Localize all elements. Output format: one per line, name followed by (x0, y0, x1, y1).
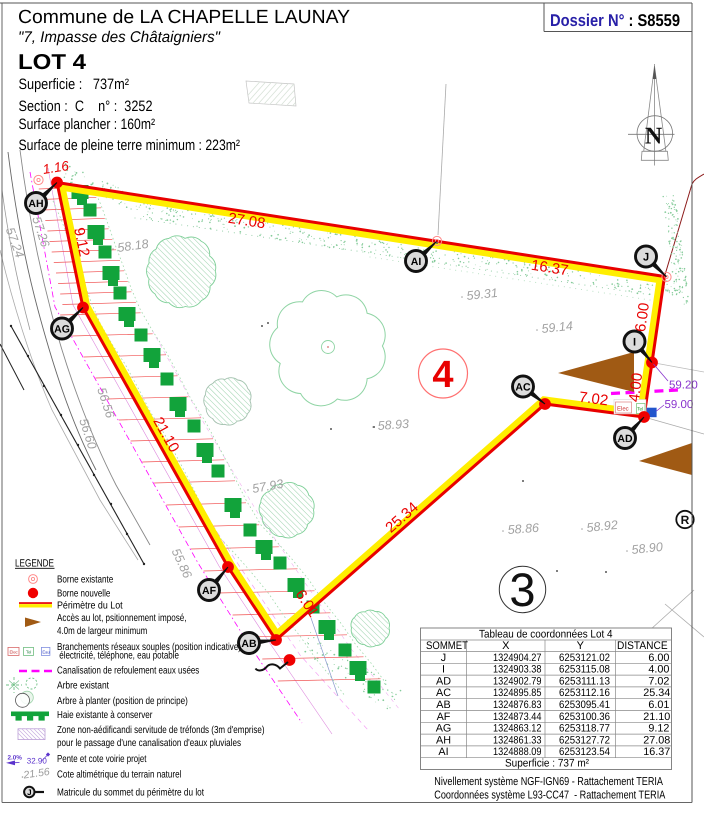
svg-text:Tableau de coordonnées Lot 4: Tableau de coordonnées Lot 4 (479, 629, 613, 641)
svg-text:1324888.09: 1324888.09 (493, 746, 542, 758)
svg-text:Dossier N° : S8559: Dossier N° : S8559 (550, 11, 680, 30)
svg-text:AD: AD (617, 433, 633, 445)
svg-text:Canalisation de refoulement ea: Canalisation de refoulement eaux usées (57, 666, 199, 677)
svg-text:AD: AD (436, 675, 451, 687)
svg-text:58.93: 58.93 (377, 417, 409, 433)
svg-text:N: N (645, 124, 663, 150)
svg-text:Borne existante: Borne existante (57, 575, 113, 586)
svg-text:LEGENDE: LEGENDE (15, 558, 54, 570)
svg-text:AB: AB (436, 699, 450, 711)
svg-text:6253095.41: 6253095.41 (559, 699, 610, 711)
svg-text:4: 4 (432, 354, 453, 396)
svg-text:I: I (442, 664, 445, 676)
svg-text:électricité, téléphone, eau po: électricité, téléphone, eau potable (57, 650, 179, 661)
svg-text:1324895.85: 1324895.85 (493, 687, 542, 699)
svg-text:AF: AF (202, 585, 217, 597)
svg-text:Superficie : 737m²: Superficie : 737m² (19, 76, 130, 93)
svg-text:Arbre existant: Arbre existant (57, 681, 109, 692)
svg-text:6253118.77: 6253118.77 (559, 723, 610, 735)
svg-text:21.10: 21.10 (643, 711, 670, 723)
svg-text:59.00: 59.00 (665, 399, 694, 411)
svg-text:Cote altimétrique du terrain n: Cote altimétrique du terrain naturel (57, 770, 181, 781)
svg-text:6253127.72: 6253127.72 (559, 734, 610, 746)
svg-text:Y: Y (577, 640, 585, 652)
svg-text:6253121.02: 6253121.02 (559, 652, 610, 664)
svg-text:6.01: 6.01 (648, 699, 669, 711)
svg-text:1324902.79: 1324902.79 (493, 675, 542, 687)
svg-text:Surface de pleine terre minimu: Surface de pleine terre minimum : 223m² (19, 137, 241, 154)
svg-text:Elec: Elec (617, 406, 629, 413)
svg-text:X: X (502, 640, 510, 652)
svg-text:AI: AI (438, 746, 448, 758)
svg-text:Zone non-aédificandi servitude: Zone non-aédificandi servitude de tréfon… (57, 725, 265, 736)
svg-text:58.86: 58.86 (507, 521, 539, 537)
svg-text:Accès au lot, psitionnement im: Accès au lot, psitionnement imposé, (57, 613, 187, 624)
svg-text:J: J (27, 788, 31, 797)
svg-text:AI: AI (411, 256, 422, 268)
svg-text:AC: AC (515, 381, 531, 393)
svg-text:1324873.44: 1324873.44 (493, 711, 542, 723)
svg-text:4.00: 4.00 (648, 664, 669, 676)
svg-text:LOT 4: LOT 4 (18, 50, 86, 74)
svg-text:Commune de LA CHAPELLE LAUNAY: Commune de LA CHAPELLE LAUNAY (18, 7, 350, 28)
svg-text:Borne nouvelle: Borne nouvelle (57, 589, 111, 600)
svg-text:4.00: 4.00 (626, 372, 646, 403)
svg-text:"7, Impasse des Châtaigniers": "7, Impasse des Châtaigniers" (18, 29, 221, 46)
svg-text:Coordonnées système L93-CC47: Coordonnées système L93-CC47 - Rattachem… (434, 790, 665, 802)
svg-text:AF: AF (437, 711, 451, 723)
svg-text:27.08: 27.08 (643, 734, 670, 746)
svg-text:I: I (633, 336, 636, 348)
svg-text:4.0m de largeur minimum: 4.0m de largeur minimum (57, 626, 147, 637)
svg-text:59.20: 59.20 (669, 380, 698, 392)
svg-text:AC: AC (436, 687, 451, 699)
svg-text:6.00: 6.00 (648, 652, 669, 664)
svg-text:Superficie : 737 m²: Superficie : 737 m² (505, 758, 589, 770)
svg-text:1324876.83: 1324876.83 (493, 699, 542, 711)
svg-text:Haie existante à conserver: Haie existante à conserver (57, 710, 153, 721)
svg-text:3: 3 (509, 563, 535, 616)
svg-text:6253115.08: 6253115.08 (559, 664, 610, 676)
svg-text:AH: AH (28, 198, 43, 210)
svg-text:AB: AB (241, 638, 257, 650)
svg-text:6253123.54: 6253123.54 (559, 746, 610, 758)
svg-text:16.37: 16.37 (643, 746, 670, 758)
svg-text:Surface plancher : 160m²: Surface plancher : 160m² (19, 116, 156, 133)
svg-text:Eau: Eau (42, 649, 50, 654)
svg-text:1324863.12: 1324863.12 (493, 723, 542, 735)
svg-text:AG: AG (54, 323, 70, 335)
svg-text:25.34: 25.34 (643, 687, 670, 699)
svg-text:Périmètre du Lot: Périmètre du Lot (57, 601, 123, 612)
svg-text:J: J (643, 251, 649, 263)
svg-text:J: J (441, 652, 446, 664)
svg-text:1324861.33: 1324861.33 (493, 734, 542, 746)
svg-text:Matricule du sommet du périmèt: Matricule du sommet du périmètre du lot (57, 788, 204, 799)
svg-text:2.0%: 2.0% (8, 754, 23, 761)
svg-text:6253111.13: 6253111.13 (559, 675, 610, 687)
svg-text:R: R (681, 513, 690, 527)
svg-text:pour le passage d'une canalisa: pour le passage d'une canalisation d'eau… (57, 738, 241, 749)
svg-text:1324904.27: 1324904.27 (493, 652, 542, 664)
svg-text:DISTANCE: DISTANCE (617, 640, 668, 652)
svg-text:1324903.38: 1324903.38 (493, 664, 542, 676)
svg-text:AH: AH (436, 734, 451, 746)
svg-text:6253100.36: 6253100.36 (559, 711, 610, 723)
svg-text:Section : C n° : 3252: Section : C n° : 3252 (19, 98, 153, 115)
svg-text:6253112.16: 6253112.16 (559, 687, 610, 699)
svg-text:AG: AG (436, 723, 452, 735)
svg-text:Tel: Tel (26, 649, 31, 654)
svg-text:9.12: 9.12 (648, 723, 669, 735)
svg-text:Pente et cote voirie projet: Pente et cote voirie projet (57, 754, 147, 765)
svg-text:Nivellement système NGF-IGN69: Nivellement système NGF-IGN69 - Rattache… (434, 776, 663, 788)
svg-text:SOMMET: SOMMET (426, 640, 468, 652)
svg-text:7.02: 7.02 (648, 675, 669, 687)
svg-text:Elec: Elec (10, 649, 18, 654)
svg-text:Arbre à planter (position de p: Arbre à planter (position de principe) (57, 696, 188, 707)
